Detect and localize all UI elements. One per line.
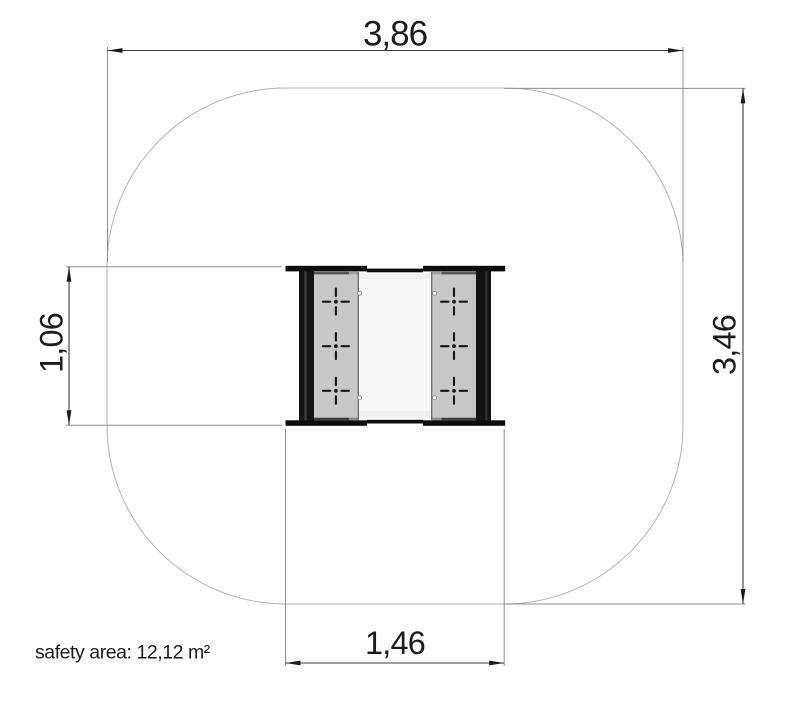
svg-text:3,86: 3,86 [363, 15, 427, 54]
svg-text:1,06: 1,06 [34, 313, 70, 373]
svg-text:1,46: 1,46 [365, 625, 425, 661]
svg-text:safety area: 12,12 m²: safety area: 12,12 m² [35, 642, 211, 664]
svg-text:3,46: 3,46 [707, 315, 743, 375]
